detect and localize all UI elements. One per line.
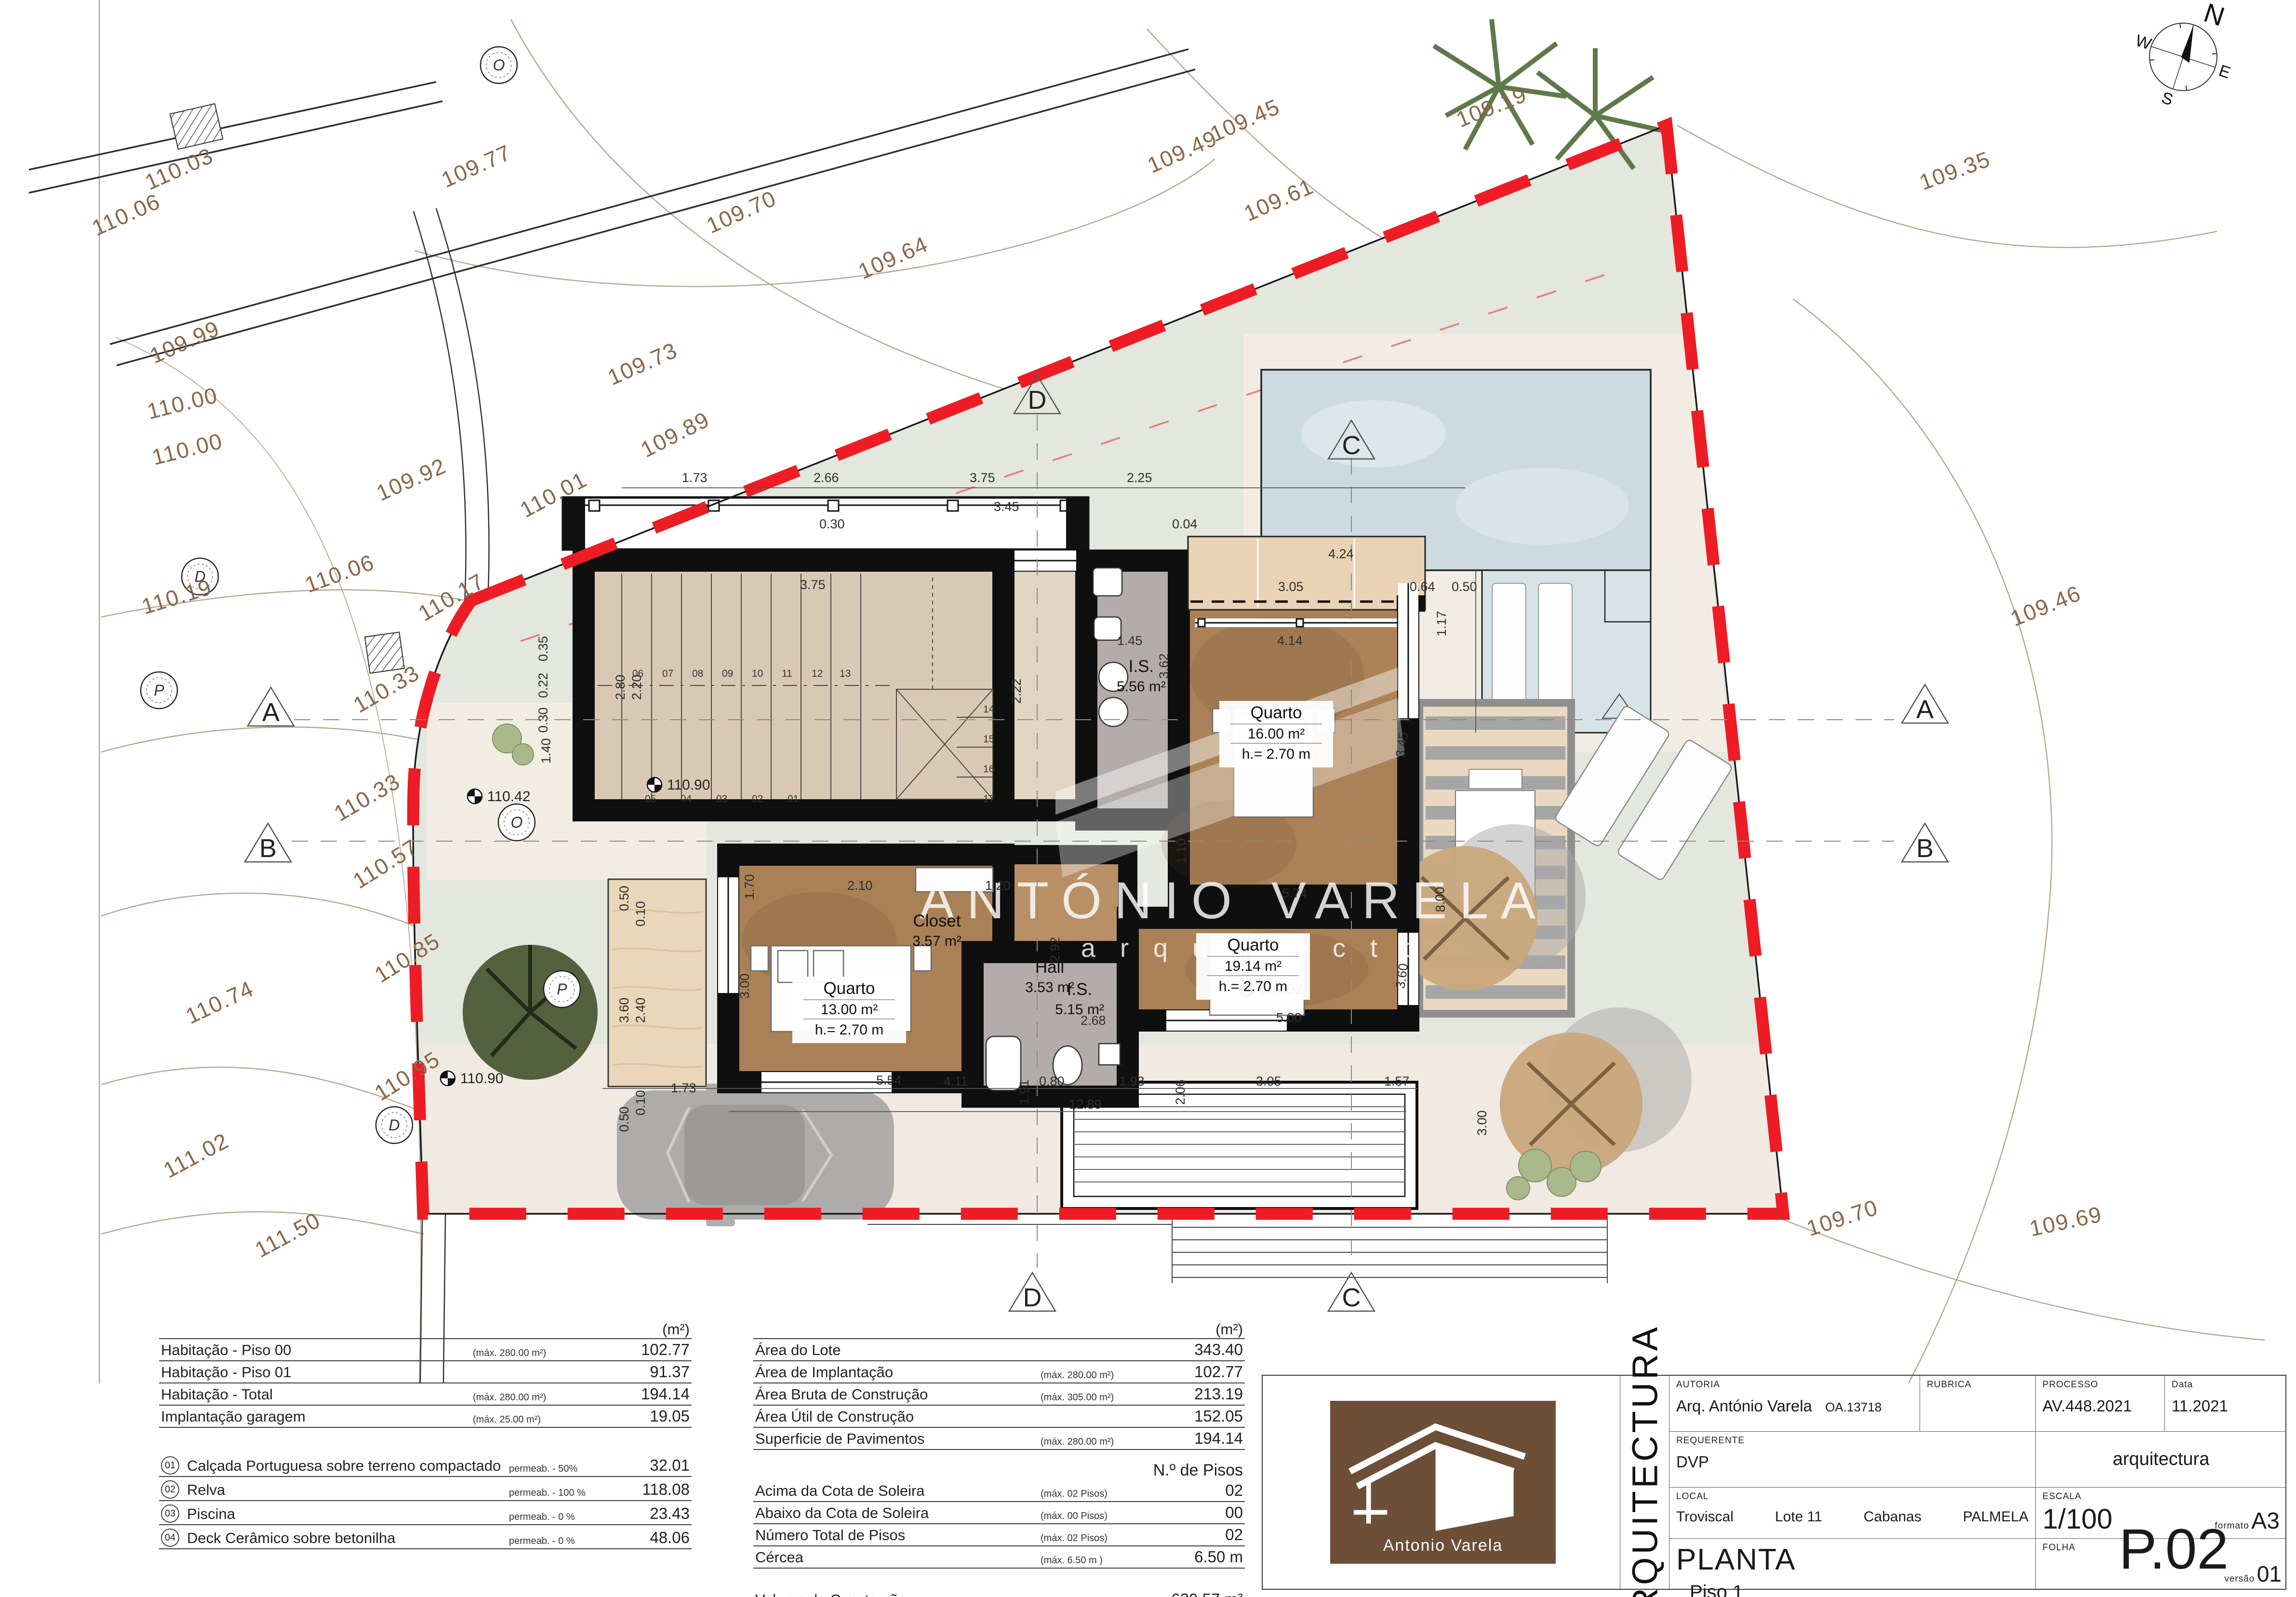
dimension-value: 2.06 bbox=[1173, 1079, 1188, 1105]
dimension-value: 4.24 bbox=[1328, 547, 1354, 561]
section-letter: C bbox=[1342, 1283, 1361, 1312]
pisos-header: N.º de Pisos bbox=[753, 1450, 1245, 1480]
section-letter: D bbox=[1028, 386, 1047, 415]
discipline-cell: arquitectura bbox=[2036, 1432, 2286, 1488]
section-letter: A bbox=[1916, 695, 1934, 724]
dimension-value: 0.10 bbox=[633, 901, 648, 926]
section-letter: B bbox=[259, 834, 277, 863]
folha-value: P.02 bbox=[2119, 1516, 2229, 1582]
room-area: 3.57 m² bbox=[912, 933, 961, 949]
dimension-value: 5.54 bbox=[876, 1073, 902, 1087]
brand-name: Antonio Varela bbox=[1330, 1536, 1556, 1555]
stair-step-number: 07 bbox=[662, 668, 673, 679]
autoria-value: Arq. António Varela bbox=[1676, 1397, 1812, 1415]
table-row: Número Total de Pisos(máx. 02 Pisos)02 bbox=[753, 1524, 1245, 1546]
dimension-value: 3.60 bbox=[617, 997, 631, 1023]
drawing-subtitle: Piso 1 bbox=[1690, 1582, 2029, 1597]
dimension-value: 0.30 bbox=[819, 517, 845, 531]
elevation-label: 111.50 bbox=[251, 1207, 324, 1262]
dimension-value: 2.80 bbox=[613, 674, 627, 700]
dimension-value: 1.45 bbox=[1117, 633, 1143, 648]
dimension-value: 5.00 bbox=[1276, 1010, 1302, 1025]
dimension-value: 1.73 bbox=[682, 470, 707, 485]
elevation-label: 109.35 bbox=[1916, 146, 1994, 195]
logo-cell: Antonio Varela bbox=[1263, 1376, 1620, 1589]
stair-step-number: 06 bbox=[632, 668, 643, 679]
dimension-value: 1.70 bbox=[742, 874, 757, 899]
spot-elevation-value: 110.90 bbox=[460, 1071, 504, 1087]
stair-step-number: 11 bbox=[782, 668, 792, 679]
elevation-label: 109.77 bbox=[438, 140, 515, 193]
gate-hatch bbox=[170, 104, 223, 149]
elevation-label: 109.61 bbox=[1240, 174, 1318, 227]
pool-lounger bbox=[1492, 583, 1526, 712]
areas-table-habitacao: (m²) Habitação - Piso 00(máx. 280.00 m²)… bbox=[159, 1317, 692, 1597]
compass-s: S bbox=[2159, 88, 2175, 109]
stair-step-number: 08 bbox=[692, 668, 703, 679]
table-row-material: 02 Relva permeab. - 100 % 118.08 bbox=[159, 1477, 692, 1501]
processo-caption: PROCESSO bbox=[2042, 1380, 2158, 1390]
dimension-value: 0.10 bbox=[633, 1090, 648, 1115]
site-plan-drawing: ANTÓNIO VARELA a r q u i t e c t o bbox=[0, 0, 2296, 1383]
dimension-value: 5.74 bbox=[1282, 886, 1308, 900]
elevation-label: 109.69 bbox=[2027, 1201, 2104, 1241]
car bbox=[617, 1084, 894, 1226]
utility-letter: O bbox=[511, 814, 523, 831]
room-name: Quarto bbox=[1228, 936, 1279, 954]
section-letter: B bbox=[1916, 834, 1934, 863]
dimension-value: 1.73 bbox=[671, 1081, 696, 1095]
compass-e: E bbox=[2216, 62, 2232, 82]
stair-step-number: 04 bbox=[681, 793, 692, 805]
elevation-label: 110.00 bbox=[149, 428, 225, 470]
stair-step-number: 13 bbox=[840, 668, 851, 679]
room-area: 5.56 m² bbox=[1117, 679, 1166, 695]
elevation-label: 109.73 bbox=[604, 337, 681, 390]
dimension-value: 8.00 bbox=[1432, 886, 1448, 913]
dimension-value: 4.11 bbox=[944, 1074, 968, 1088]
dimension-value: 1.20 bbox=[985, 878, 1011, 893]
dimension-value: 2.22 bbox=[1009, 678, 1024, 704]
areas-table-lote: (m²) Área do Lote343.40 Área de Implanta… bbox=[753, 1317, 1245, 1597]
room-name: Closet bbox=[913, 912, 961, 930]
local-troviscal: Troviscal bbox=[1676, 1509, 1734, 1525]
data-cell: Data 11.2021 bbox=[2165, 1376, 2286, 1432]
room-height: h.= 2.70 m bbox=[815, 1022, 884, 1038]
elevation-label: 110.00 bbox=[145, 382, 220, 424]
stair-step-number: 09 bbox=[722, 668, 733, 679]
spot-elevation-value: 110.90 bbox=[667, 777, 710, 793]
stair-step-number: 01 bbox=[788, 793, 799, 805]
roof-terrace bbox=[1188, 537, 1425, 612]
stair-step-number: 03 bbox=[716, 793, 727, 805]
dimension-value: 3.05 bbox=[1256, 1074, 1281, 1088]
elevation-label: 110.06 bbox=[88, 188, 164, 241]
room-name: Hall bbox=[1035, 958, 1064, 977]
dimension-value: 2.10 bbox=[847, 878, 873, 893]
section-letter: A bbox=[262, 698, 280, 727]
dimension-value: 3.45 bbox=[994, 499, 1019, 514]
local-palmela: PALMELA bbox=[1963, 1509, 2029, 1525]
rubrica-caption: RUBRICA bbox=[1927, 1380, 2029, 1390]
elevation-label: 110.74 bbox=[182, 976, 257, 1029]
table-unit-header: (m²) bbox=[753, 1317, 1245, 1339]
local-cell: LOCAL Troviscal Lote 11 Cabanas PALMELA bbox=[1669, 1488, 2036, 1539]
chair bbox=[1469, 769, 1522, 789]
architect-logo: Antonio Varela bbox=[1330, 1401, 1556, 1564]
section-letter: C bbox=[1342, 431, 1361, 460]
drawing-title-cell: PLANTA Piso 1 bbox=[1669, 1539, 2036, 1589]
utility-letter: O bbox=[493, 56, 505, 74]
utility-letter: P bbox=[557, 980, 567, 998]
dimension-value: 0.22 bbox=[536, 672, 550, 698]
dimension-value: 2.25 bbox=[1127, 470, 1152, 485]
utility-letter: D bbox=[388, 1116, 400, 1134]
stair-step-number: 16 bbox=[983, 764, 994, 775]
room-area: 19.14 m² bbox=[1225, 958, 1281, 974]
room-area: 13.00 m² bbox=[821, 1002, 878, 1018]
stair-step-number: 05 bbox=[645, 793, 656, 805]
table-row: Habitação - Total(máx. 280.00 m²)194.14 bbox=[159, 1383, 692, 1406]
discipline-vertical-label: ARQUITECTURA bbox=[1620, 1376, 1669, 1589]
table-row-material: 04 Deck Cerâmico sobre betonilha permeab… bbox=[159, 1525, 692, 1549]
requerente-cell: REQUERENTE DVP bbox=[1669, 1432, 2036, 1488]
dimension-value: 3.62 bbox=[1157, 653, 1171, 679]
room-name: Quarto bbox=[1251, 703, 1302, 722]
elevation-label: 109.45 bbox=[1206, 94, 1284, 147]
table-row: Área Útil de Construção152.05 bbox=[753, 1406, 1245, 1428]
dimension-value: 1.91 bbox=[1017, 1079, 1031, 1105]
table-row-total: Volume de Construção639.57 m³ bbox=[753, 1589, 1245, 1597]
table-row: Implantação garagem(máx. 25.00 m²)19.05 bbox=[159, 1406, 692, 1428]
title-block: Antonio Varela ARQUITECTURA AUTORIA Arq.… bbox=[1262, 1375, 2286, 1590]
utility-letter: P bbox=[154, 682, 164, 699]
dimension-value: 0.30 bbox=[536, 707, 550, 733]
dimension-value: 0.64 bbox=[1410, 579, 1435, 594]
dimension-value: 3.00 bbox=[1475, 1110, 1489, 1136]
stair-step-number: 15 bbox=[983, 734, 994, 745]
dimension-value: 2.66 bbox=[814, 470, 839, 485]
table-row: Habitação - Piso 00(máx. 280.00 m²)102.7… bbox=[159, 1339, 692, 1361]
table-row: Acima da Cota de Soleira(máx. 02 Pisos)0… bbox=[753, 1480, 1245, 1502]
table-row: Abaixo da Cota de Soleira(máx. 00 Pisos)… bbox=[753, 1502, 1245, 1524]
street-steps bbox=[868, 1216, 1607, 1283]
elevation-label: 110.03 bbox=[141, 143, 217, 195]
elevation-label: 109.70 bbox=[1803, 1194, 1881, 1241]
dimension-value: 3.75 bbox=[970, 470, 995, 485]
requerente-value: DVP bbox=[1676, 1453, 2029, 1471]
dimension-value: 1.17 bbox=[1434, 611, 1449, 636]
dimension-value: 1.10 bbox=[1174, 838, 1188, 864]
table-row-material: 01 Calçada Portuguesa sobre terreno comp… bbox=[159, 1453, 692, 1477]
elevation-label: 109.46 bbox=[2007, 580, 2084, 631]
drawing-title: PLANTA bbox=[1676, 1543, 2029, 1577]
data-value: 11.2021 bbox=[2172, 1397, 2280, 1415]
room-name: Quarto bbox=[824, 979, 875, 998]
stair-step-number: 12 bbox=[812, 668, 823, 679]
processo-cell: PROCESSO AV.448.2021 bbox=[2036, 1376, 2165, 1432]
dimension-value: 3.05 bbox=[1278, 579, 1304, 594]
dimension-value: 2.40 bbox=[633, 997, 648, 1023]
dimension-value: 1.40 bbox=[539, 738, 553, 764]
folha-cell: FOLHA P.02 versão 01 bbox=[2036, 1539, 2286, 1589]
local-cabanas: Cabanas bbox=[1864, 1509, 1922, 1525]
table-row: Cércea(máx. 6.50 m )6.50 m bbox=[753, 1546, 1245, 1569]
dimension-value: 1.57 bbox=[1384, 1074, 1410, 1088]
requerente-caption: REQUERENTE bbox=[1676, 1436, 2029, 1446]
room-height: h.= 2.70 m bbox=[1219, 979, 1288, 994]
drawing-sheet: ANTÓNIO VARELA a r q u i t e c t o bbox=[0, 0, 2296, 1597]
local-caption: LOCAL bbox=[1676, 1491, 2029, 1502]
dimension-value: 12.89 bbox=[1069, 1097, 1102, 1112]
versao-caption: versão bbox=[2224, 1574, 2255, 1584]
room-name: I.S. bbox=[1129, 657, 1154, 676]
dimension-value: 3.75 bbox=[800, 577, 826, 592]
elevation-label: 110.19 bbox=[139, 574, 215, 619]
rubrica-cell: RUBRICA bbox=[1920, 1376, 2036, 1432]
watermark-name: ANTÓNIO VARELA bbox=[920, 871, 1548, 929]
elevation-label: 109.92 bbox=[373, 453, 450, 506]
stair-step-number: 17 bbox=[983, 793, 994, 805]
discipline-value: arquitectura bbox=[2113, 1449, 2210, 1470]
elevation-label: 109.89 bbox=[637, 406, 714, 462]
house-logo-icon bbox=[1330, 1401, 1556, 1531]
dimension-value: 1.93 bbox=[1119, 1074, 1145, 1088]
table-row: Área de Implantação(máx. 280.00 m²)102.7… bbox=[753, 1361, 1245, 1383]
elevation-label: 109.64 bbox=[854, 231, 932, 284]
compass-rose: N E S W bbox=[2119, 0, 2250, 123]
room-height: h.= 2.70 m bbox=[1242, 746, 1311, 762]
processo-value: AV.448.2021 bbox=[2042, 1397, 2158, 1415]
autoria-caption: AUTORIA bbox=[1676, 1380, 1913, 1390]
table-row: Área do Lote343.40 bbox=[753, 1339, 1245, 1361]
formato-value: A3 bbox=[2251, 1508, 2280, 1534]
dimension-value: 0.80 bbox=[1039, 1074, 1065, 1088]
dimension-value: 4.14 bbox=[1277, 633, 1303, 648]
escala-caption: ESCALA bbox=[2042, 1491, 2178, 1502]
room-area: 16.00 m² bbox=[1248, 726, 1305, 742]
spot-elevation-value: 110.42 bbox=[487, 789, 531, 805]
versao-value: 01 bbox=[2257, 1561, 2282, 1586]
stair-step-number: 14 bbox=[983, 704, 995, 715]
autoria-cell: AUTORIA Arq. António Varela OA.13718 bbox=[1669, 1376, 1920, 1432]
dimension-value: 0.35 bbox=[536, 636, 550, 661]
table-row: Área Bruta de Construção(máx. 305.00 m²)… bbox=[753, 1383, 1245, 1406]
dimension-value: 3.00 bbox=[737, 973, 752, 999]
room-area: 5.15 m² bbox=[1055, 1002, 1104, 1018]
elevation-label: 109.49 bbox=[1144, 125, 1221, 178]
local-lote: Lote 11 bbox=[1775, 1509, 1822, 1525]
table-row: Superficie de Pavimentos(máx. 280.00 m²)… bbox=[753, 1428, 1245, 1450]
dimension-value: 0.50 bbox=[617, 1106, 631, 1132]
stair-step-number: 02 bbox=[752, 793, 763, 805]
table-row-material: 03 Piscina permeab. - 0 % 23.43 bbox=[159, 1501, 692, 1525]
section-letter: D bbox=[1023, 1283, 1042, 1312]
pool-lounger bbox=[1538, 583, 1572, 712]
room-name: I.S. bbox=[1067, 980, 1093, 999]
dimension-value: 0.50 bbox=[617, 886, 631, 911]
stair-step-number: 10 bbox=[752, 668, 763, 679]
dimension-value: 0.04 bbox=[1172, 517, 1198, 531]
table-unit-header: (m²) bbox=[159, 1317, 692, 1339]
elevation-label: 111.02 bbox=[159, 1127, 233, 1182]
compass-n: N bbox=[2201, 0, 2229, 32]
data-caption: Data bbox=[2172, 1380, 2280, 1390]
dimension-value: 0.50 bbox=[1452, 579, 1477, 594]
autoria-oa: OA.13718 bbox=[1825, 1400, 1882, 1414]
table-row: Habitação - Piso 0191.37 bbox=[159, 1361, 692, 1383]
